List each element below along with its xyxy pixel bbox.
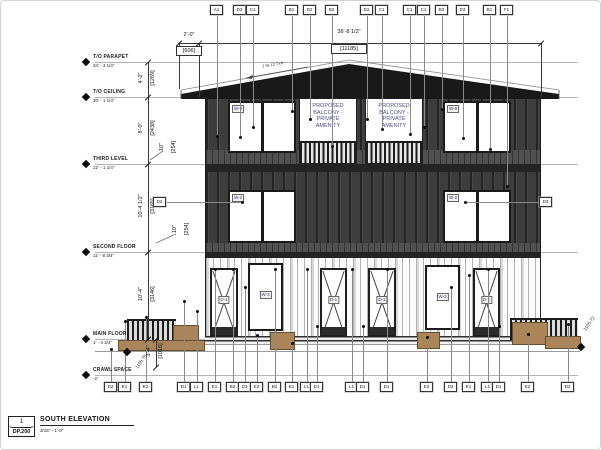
callout-d2: D2 bbox=[360, 5, 373, 15]
callout-dot bbox=[462, 137, 465, 140]
callout-dot bbox=[362, 325, 365, 328]
callout-leader bbox=[424, 16, 425, 128]
callout-dot bbox=[216, 135, 219, 138]
callout-dot bbox=[110, 348, 113, 351]
view-scale: 3/16" - 1'-0" bbox=[40, 428, 63, 433]
callout-d1: D1 bbox=[356, 382, 369, 392]
dim-text-ft: 10'-4" bbox=[138, 264, 144, 324]
view-title: SOUTH ELEVATION bbox=[40, 416, 134, 426]
window-tag: W-9 bbox=[447, 105, 459, 113]
callout-e2: E2 bbox=[420, 382, 433, 392]
dim-overhang-ft: 2'-0" bbox=[169, 32, 209, 38]
callout-dot bbox=[498, 325, 501, 328]
dim-width-mm: [11185] bbox=[331, 44, 367, 54]
view-reference-symbol: 1 DP.200 bbox=[8, 416, 35, 437]
callout-leader bbox=[292, 344, 293, 382]
window-tag: W-2 bbox=[447, 194, 459, 202]
callout-d2: D2 bbox=[153, 197, 166, 207]
callout-leader bbox=[292, 16, 293, 112]
detail-number: 1 bbox=[9, 417, 34, 428]
callout-dot bbox=[567, 323, 570, 326]
window-mullion bbox=[261, 192, 264, 241]
callout-leader bbox=[307, 270, 308, 382]
balcony-railing bbox=[300, 141, 356, 163]
door-kick bbox=[475, 327, 498, 335]
callout-d3: D3 bbox=[539, 197, 552, 207]
callout-dot bbox=[441, 108, 444, 111]
level-name: T/O CEILING bbox=[93, 89, 125, 95]
level-name: T/O PARAPET bbox=[93, 54, 128, 60]
balcony-right: PROPOSED BALCONY - PRIVATE AMENITY bbox=[365, 98, 423, 164]
callout-dot bbox=[232, 268, 235, 271]
dim-width-ft: 36'-8 1/2" bbox=[319, 29, 379, 35]
callout-dot bbox=[506, 185, 509, 188]
door-tag: D-1 bbox=[481, 296, 492, 304]
door-kick bbox=[322, 327, 345, 335]
callout-d2: D2 bbox=[303, 5, 316, 15]
level-name: MAIN FLOOR bbox=[93, 331, 127, 337]
callout-dot bbox=[351, 268, 354, 271]
callout-dot bbox=[366, 118, 369, 121]
balcony-left: PROPOSED BALCONY - PRIVATE AMENITY bbox=[299, 98, 357, 164]
window-upper-left: W-9 bbox=[228, 101, 296, 153]
dim-text-mm: [254] bbox=[171, 117, 177, 177]
callout-e1: E1 bbox=[462, 382, 475, 392]
callout-leader bbox=[382, 16, 383, 130]
dim-text-ft: 10'-4 1/2" bbox=[138, 176, 144, 236]
callout-d3: D3 bbox=[233, 5, 246, 15]
callout-b3: B3 bbox=[435, 5, 448, 15]
callout-dot bbox=[145, 316, 148, 319]
balcony-note: PROPOSED BALCONY - PRIVATE AMENITY bbox=[366, 103, 422, 129]
callout-leader bbox=[451, 288, 452, 382]
callout-leader bbox=[217, 16, 218, 137]
level-elevation: 34' - 3 1/4" bbox=[93, 63, 114, 68]
callout-leader bbox=[184, 302, 185, 382]
window-mullion bbox=[476, 103, 479, 151]
callout-e2: E2 bbox=[250, 382, 263, 392]
door-4: D-1 bbox=[473, 268, 500, 337]
callout-dot bbox=[386, 268, 389, 271]
callout-dot bbox=[214, 268, 217, 271]
callout-d2: D2 bbox=[104, 382, 117, 392]
callout-leader bbox=[568, 325, 569, 382]
callout-dot bbox=[183, 300, 186, 303]
callout-b1: B1 bbox=[483, 5, 496, 15]
callout-a1: A1 bbox=[210, 5, 223, 15]
balcony-note-line: AMENITY bbox=[366, 123, 422, 130]
window-tag: W-3 bbox=[259, 291, 271, 299]
callout-leader bbox=[240, 16, 241, 138]
callout-leader bbox=[465, 202, 539, 203]
callout-leader bbox=[442, 16, 443, 110]
callout-leader bbox=[233, 270, 234, 382]
door-tag: D-1 bbox=[218, 296, 229, 304]
callout-dot bbox=[274, 268, 277, 271]
window-main-right: W-3 bbox=[425, 265, 460, 330]
callout-leader bbox=[245, 288, 246, 382]
dim-text-mm: [254] bbox=[184, 199, 190, 259]
callout-dot bbox=[489, 148, 492, 151]
callout-d3: D3 bbox=[456, 5, 469, 15]
callout-e2: E2 bbox=[139, 382, 152, 392]
window-mullion bbox=[261, 103, 264, 151]
callout-leader bbox=[332, 16, 333, 147]
callout-leader bbox=[363, 327, 364, 382]
dim-text-mm: [3146] bbox=[150, 264, 156, 324]
dim-text-mm: [1016] bbox=[158, 321, 164, 381]
callout-dot bbox=[381, 128, 384, 131]
callout-dot bbox=[331, 145, 334, 148]
dim-text-ft: 8'-0" bbox=[138, 98, 144, 158]
callout-c1: C1 bbox=[417, 5, 430, 15]
callout-leader bbox=[499, 327, 500, 382]
callout-leader bbox=[488, 270, 489, 382]
window-main-left: W-3 bbox=[248, 263, 283, 331]
callout-dot bbox=[244, 286, 247, 289]
dim-text-ft: 10" bbox=[159, 117, 165, 177]
door-2: D-1 bbox=[320, 268, 347, 337]
door-tag: D-1 bbox=[376, 296, 387, 304]
callout-e2: E2 bbox=[521, 382, 534, 392]
callout-leader bbox=[197, 312, 198, 382]
callout-leader bbox=[352, 270, 353, 382]
elevation-sheet: 2 IN 12 TYP W-9 W-9 PROPOSED BALCONY - P… bbox=[0, 0, 601, 450]
balcony-note: PROPOSED BALCONY - PRIVATE AMENITY bbox=[300, 103, 356, 129]
callout-dot bbox=[487, 268, 490, 271]
callout-dot bbox=[306, 268, 309, 271]
level-elevation: 1' - 4 3/4" bbox=[93, 340, 112, 345]
callout-dot bbox=[291, 342, 294, 345]
planter-center-right bbox=[417, 332, 440, 349]
balcony-note-line: AMENITY bbox=[300, 123, 356, 130]
callout-l1: L1 bbox=[190, 382, 203, 392]
callout-c1: C1 bbox=[246, 5, 259, 15]
callout-leader bbox=[463, 16, 464, 139]
callout-b1: B1 bbox=[285, 5, 298, 15]
callout-leader bbox=[111, 350, 112, 382]
sheet-number: DP.200 bbox=[9, 428, 34, 437]
callout-leader bbox=[215, 270, 216, 382]
callout-leader bbox=[275, 270, 276, 382]
callout-d1: D1 bbox=[492, 382, 505, 392]
dimension-line bbox=[148, 62, 149, 339]
dimension-line bbox=[541, 43, 542, 97]
window-mid-left: W-2 bbox=[228, 190, 296, 243]
dim-text-mm: [2438] bbox=[150, 98, 156, 158]
callout-dot bbox=[256, 334, 259, 337]
callout-dot bbox=[241, 201, 244, 204]
callout-dot bbox=[124, 320, 127, 323]
callout-c1: C1 bbox=[403, 5, 416, 15]
window-upper-right: W-9 bbox=[443, 101, 511, 153]
callout-c1: C1 bbox=[375, 5, 388, 15]
dimension-line bbox=[156, 339, 157, 367]
callout-dot bbox=[196, 310, 199, 313]
callout-dot bbox=[527, 333, 530, 336]
callout-leader bbox=[528, 335, 529, 382]
level-elevation: 30' - 1 1/4" bbox=[93, 98, 114, 103]
callout-leader bbox=[310, 16, 311, 120]
callout-e1: E1 bbox=[118, 382, 131, 392]
level-elevation: -2' bbox=[93, 376, 98, 381]
level-elevation: 11' - 8 3/4" bbox=[93, 253, 114, 258]
callout-b2: B2 bbox=[268, 382, 281, 392]
callout-d1: D1 bbox=[177, 382, 190, 392]
callout-e1: E1 bbox=[285, 382, 298, 392]
window-tag: W-9 bbox=[232, 105, 244, 113]
callout-leader bbox=[253, 16, 254, 128]
callout-d2: D2 bbox=[561, 382, 574, 392]
callout-leader bbox=[507, 16, 508, 187]
callout-dot bbox=[468, 274, 471, 277]
callout-d3: D3 bbox=[444, 382, 457, 392]
level-name: THIRD LEVEL bbox=[93, 156, 128, 162]
window-tag: W-3 bbox=[436, 293, 448, 301]
callout-leader bbox=[167, 202, 242, 203]
callout-dot bbox=[423, 126, 426, 129]
callout-leader bbox=[317, 327, 318, 382]
callout-dot bbox=[291, 110, 294, 113]
callout-e1: E1 bbox=[208, 382, 221, 392]
level-name: CRAWL SPACE bbox=[93, 367, 132, 373]
door-kick bbox=[370, 327, 394, 335]
floor-rim bbox=[205, 336, 541, 344]
window-mid-right: W-2 bbox=[443, 190, 511, 243]
callout-leader bbox=[469, 276, 470, 382]
callout-f1: F1 bbox=[500, 5, 513, 15]
callout-b2: B2 bbox=[325, 5, 338, 15]
callout-leader bbox=[257, 336, 258, 382]
callout-dot bbox=[309, 118, 312, 121]
dim-text-ft: 10" bbox=[172, 199, 178, 259]
callout-dot bbox=[316, 325, 319, 328]
callout-dot bbox=[239, 136, 242, 139]
dim-overhang-mm: [606] bbox=[176, 46, 202, 56]
callout-dot bbox=[450, 286, 453, 289]
door-3: D-1 bbox=[368, 268, 396, 337]
callout-dot bbox=[252, 126, 255, 129]
level-elevation: 22' - 1 1/4" bbox=[93, 165, 114, 170]
balcony-railing bbox=[366, 141, 422, 163]
callout-dot bbox=[409, 133, 412, 136]
window-mullion bbox=[476, 192, 479, 241]
callout-d1: D1 bbox=[380, 382, 393, 392]
callout-leader bbox=[387, 270, 388, 382]
callout-leader bbox=[427, 338, 428, 382]
callout-d1: D1 bbox=[310, 382, 323, 392]
callout-leader bbox=[410, 16, 411, 135]
door-tag: D-1 bbox=[328, 296, 339, 304]
level-name: SECOND FLOOR bbox=[93, 244, 136, 250]
callout-dot bbox=[464, 201, 467, 204]
right-deck-planter bbox=[512, 322, 548, 345]
callout-leader bbox=[490, 16, 491, 150]
callout-dot bbox=[426, 336, 429, 339]
